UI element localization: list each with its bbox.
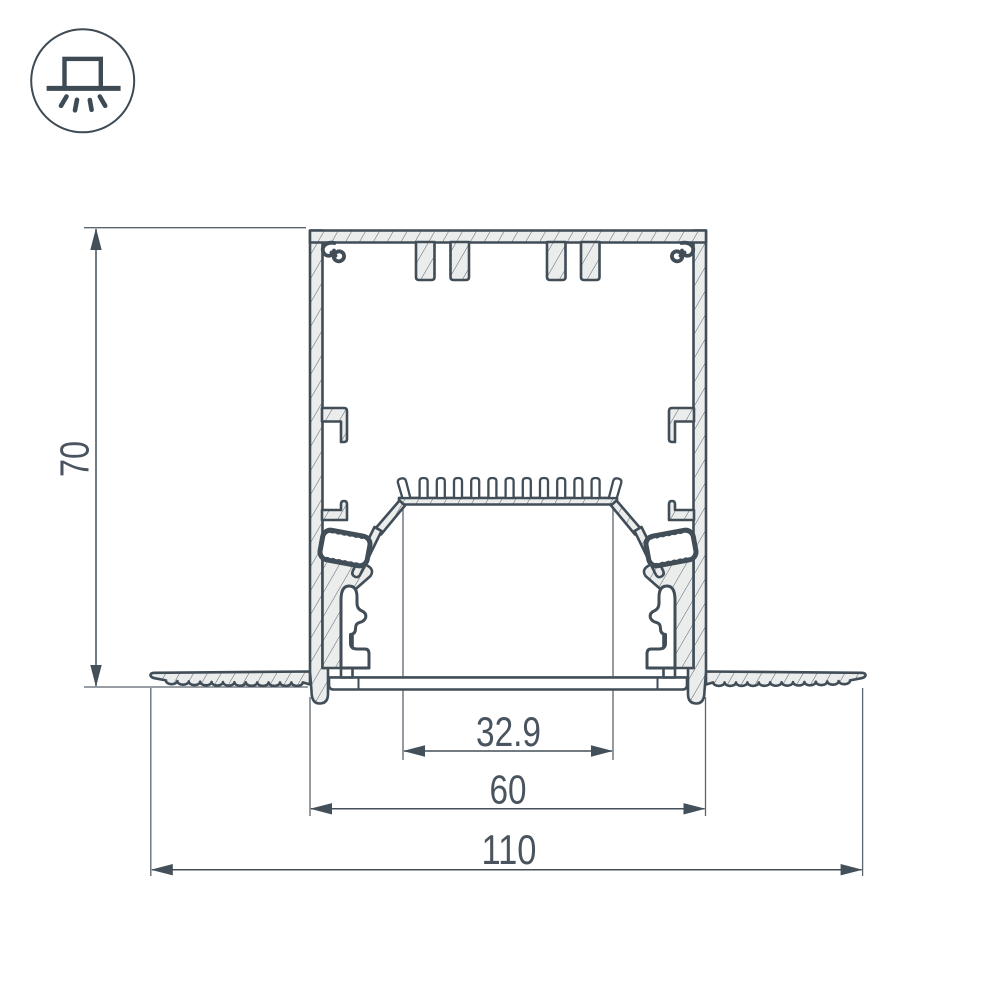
svg-text:60: 60 — [490, 767, 527, 813]
svg-text:70: 70 — [52, 441, 98, 477]
svg-text:110: 110 — [482, 826, 537, 873]
svg-text:32.9: 32.9 — [476, 708, 541, 755]
